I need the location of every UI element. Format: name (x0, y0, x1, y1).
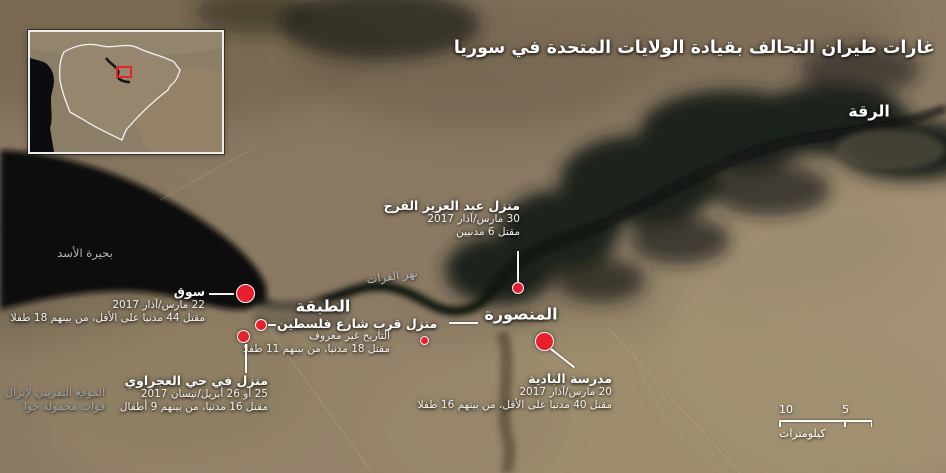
scale-line (779, 420, 872, 422)
map-canvas: غارات طيران التحالف بقيادة الولايات المت… (0, 0, 946, 473)
incident-title: منزل في حي العجراوي (120, 373, 268, 388)
incident-title: سوق (11, 284, 205, 299)
lake-assad-label: بحيرة الأسد (57, 246, 113, 260)
incident-date: 22 مارس/آذار 2017 (11, 299, 205, 312)
incident-casualties: مقتل 44 مدنيا على الأقل، من بينهم 18 طفل… (11, 312, 205, 325)
leader-line-faraj (517, 251, 519, 282)
incident-title-palestine-street: منزل قرب شارع فلسطين (277, 316, 437, 331)
city-label-tabqa: الطبقة (296, 297, 351, 316)
city-label-mansoura: المنصورة (484, 305, 557, 324)
scale-tick (844, 422, 846, 427)
leader-line-palestine-street-2 (449, 322, 478, 324)
leader-line-souq (209, 293, 234, 295)
incident-casualties: مقتل 6 مدنيين (384, 226, 520, 239)
incident-casualties: مقتل 40 مدنيا على الأقل، من بينهم 16 طفل… (418, 399, 612, 412)
marker-dot-souq (236, 284, 255, 303)
incident-title: منزل عبد العزيز الفرج (384, 198, 520, 213)
airborne-landing-note: الموقع التقريبي لإنزال قوات محمولة جوا (1, 386, 105, 414)
incident-casualties: مقتل 16 مدنيا، من بينهم 9 أطفال (120, 401, 268, 414)
incident-title: مدرسة البادية (418, 371, 612, 386)
incident-annotation-badiya-school: مدرسة البادية 20 مارس/آذار 2017 مقتل 40 … (418, 371, 612, 411)
incident-annotation-faraj: منزل عبد العزيز الفرج 30 مارس/آذار 2017 … (384, 198, 520, 238)
scale-unit-label: كيلومترات (779, 427, 826, 440)
leader-line-ajrawi (245, 344, 247, 373)
map-title: غارات طيران التحالف بقيادة الولايات المت… (454, 38, 935, 58)
incident-date: 30 مارس/آذار 2017 (384, 213, 520, 226)
syria-locator-graphic (30, 32, 222, 152)
incident-date: التاريخ غير معروف (243, 330, 390, 343)
incident-date: 20 مارس/آذار 2017 (418, 386, 612, 399)
incident-annotation-souq: سوق 22 مارس/آذار 2017 مقتل 44 مدنيا على … (11, 284, 205, 324)
incident-annotation-palestine-street: التاريخ غير معروف مقتل 18 مدنيا، من بينه… (243, 330, 390, 355)
scale-bar: 10 5 كيلومترات (779, 403, 875, 447)
incident-date: 25 أو 26 أبريل/نيسان 2017 (120, 388, 268, 401)
marker-dot-small (420, 336, 429, 345)
scale-tick (871, 422, 873, 427)
marker-dot-ajrawi (237, 330, 250, 343)
incident-title: منزل قرب شارع فلسطين (277, 316, 437, 331)
scale-label-5: 5 (842, 403, 849, 416)
syria-locator-inset (28, 30, 224, 154)
city-label-raqqa: الرقة (848, 102, 890, 121)
incident-casualties: مقتل 18 مدنيا، من بينهم 11 طفلا (243, 343, 390, 356)
marker-dot-faraj (512, 282, 524, 294)
leader-line-palestine-street (268, 324, 276, 326)
scale-label-10: 10 (779, 403, 793, 416)
incident-annotation-ajrawi: منزل في حي العجراوي 25 أو 26 أبريل/نيسان… (120, 373, 268, 413)
